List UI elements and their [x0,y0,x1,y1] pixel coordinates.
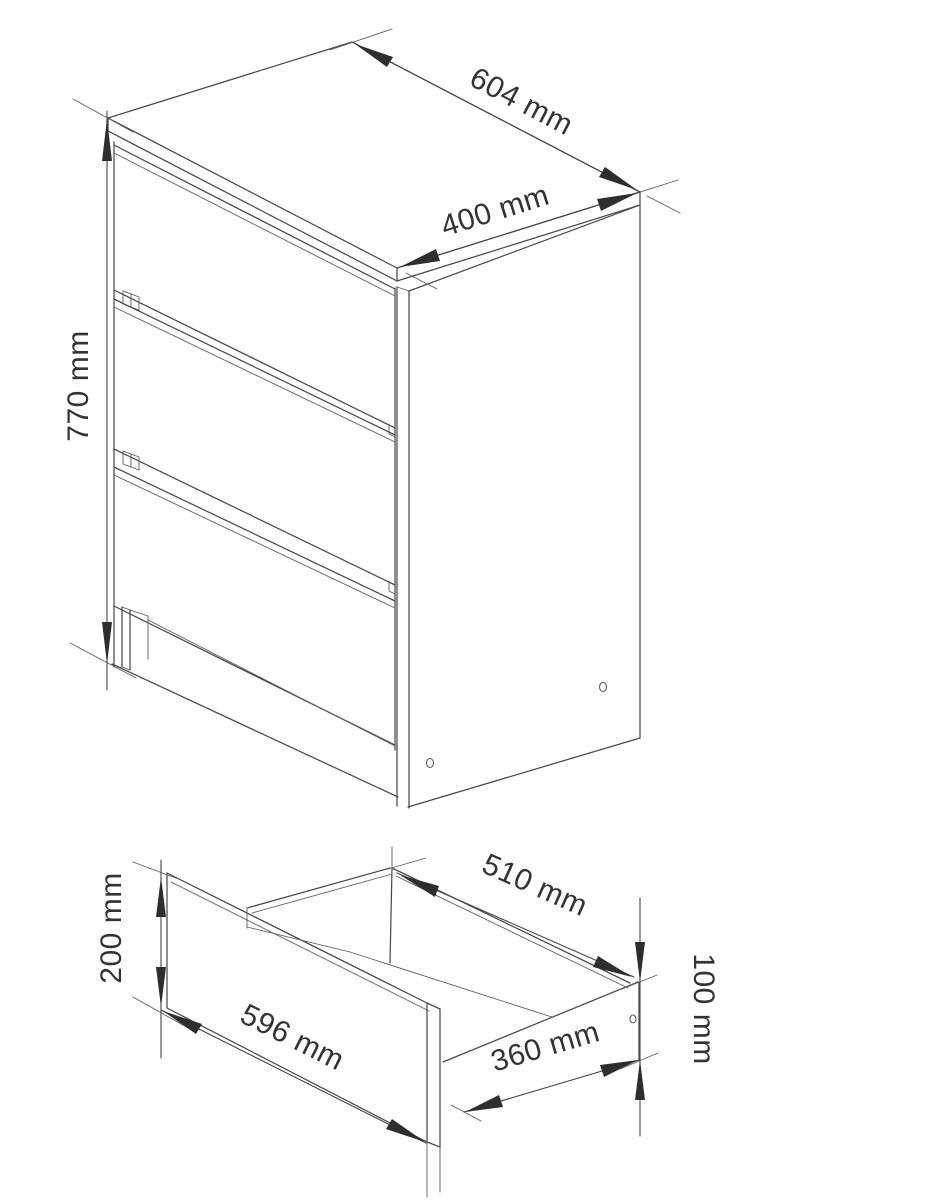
dimension-label-596: 596 mm [235,998,349,1077]
arrowhead-icon [102,119,112,161]
dimension-label-770: 770 mm [62,330,95,441]
screw-hole-icon [427,759,434,768]
arrowhead-icon [102,622,112,664]
arrowhead-icon [465,1095,503,1112]
dimension-604: 604 mm [330,29,678,199]
dimension-label-360: 360 mm [487,1015,603,1078]
cabinet-view: 604 mm 400 mm 770 mm [62,29,680,808]
arrowhead-icon [600,1060,638,1077]
dimension-510: 510 mm [388,847,634,977]
arrowhead-icon [355,44,393,67]
drawer-front-panel [167,873,440,1147]
arrowhead-icon [599,167,637,190]
furniture-dimension-diagram: 604 mm 400 mm 770 mm [0,0,937,1200]
dimension-360: 360 mm [451,1015,639,1121]
dimension-200: 200 mm [95,860,190,1058]
cabinet-side-panel [397,205,640,808]
dimension-label-200: 200 mm [95,872,128,983]
cabinet-drawer-fronts [114,142,395,750]
arrowhead-icon [163,1011,202,1034]
arrowhead-icon [635,1060,645,1100]
arrowhead-icon [635,942,645,982]
cabinet-plinth [112,607,398,797]
arrowhead-icon [400,875,439,897]
dimension-400: 400 mm [397,179,680,289]
cabinet-drawer-front-1 [114,145,395,428]
dimension-596: 596 mm [161,998,440,1197]
dimension-770: 770 mm [62,99,136,690]
cabinet-drawer-front-3 [114,467,395,745]
dimension-label-100: 100 mm [687,953,720,1064]
cabinet-drawer-front-2 [114,299,395,585]
dimension-100: 100 mm [620,898,720,1136]
arrowhead-icon [386,1119,425,1142]
cabinet-top-panel [108,42,640,281]
screw-hole-icon [630,1015,636,1023]
arrowhead-icon [156,967,166,1007]
arrowhead-icon [156,877,166,917]
drawer-view: 200 mm 596 mm 510 mm 360 mm [95,847,720,1197]
screw-hole-icon [600,683,607,692]
dimension-label-400: 400 mm [437,179,553,244]
arrowhead-icon [400,249,440,267]
dimension-label-510: 510 mm [477,848,592,923]
drawing-canvas: 604 mm 400 mm 770 mm [0,0,937,1200]
